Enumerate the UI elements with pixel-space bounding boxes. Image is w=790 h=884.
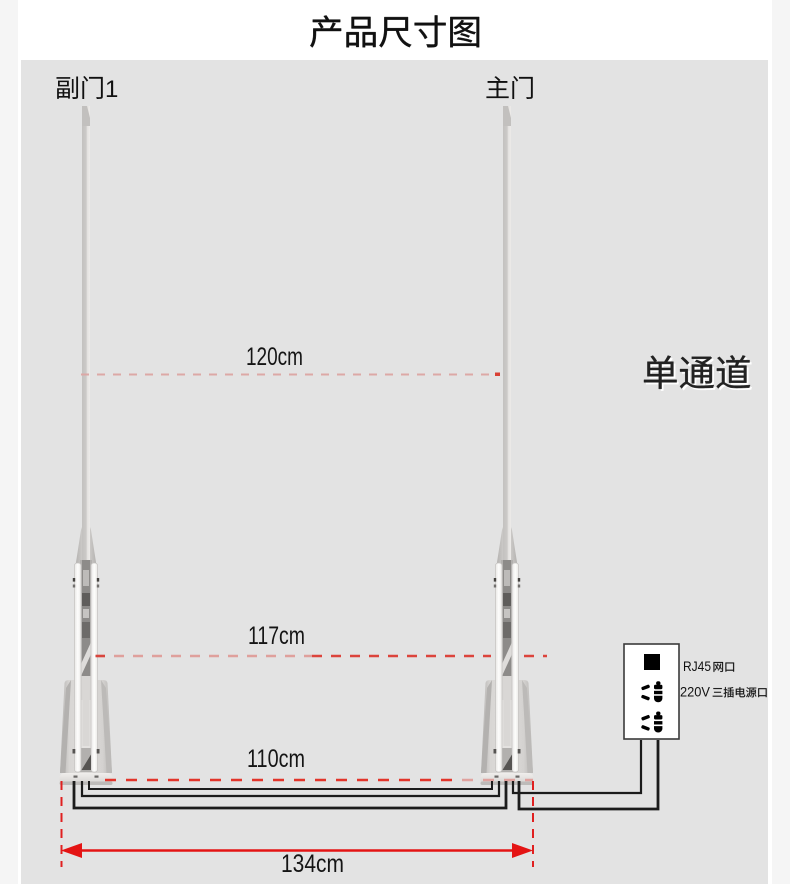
svg-text:134cm: 134cm [281, 850, 344, 878]
svg-text:110cm: 110cm [247, 745, 305, 773]
svg-text:120cm: 120cm [246, 343, 303, 371]
svg-text:220V: 220V [680, 684, 711, 700]
svg-text:117cm: 117cm [248, 622, 305, 650]
svg-text:1: 1 [105, 76, 118, 103]
svg-text:RJ45: RJ45 [683, 658, 711, 674]
